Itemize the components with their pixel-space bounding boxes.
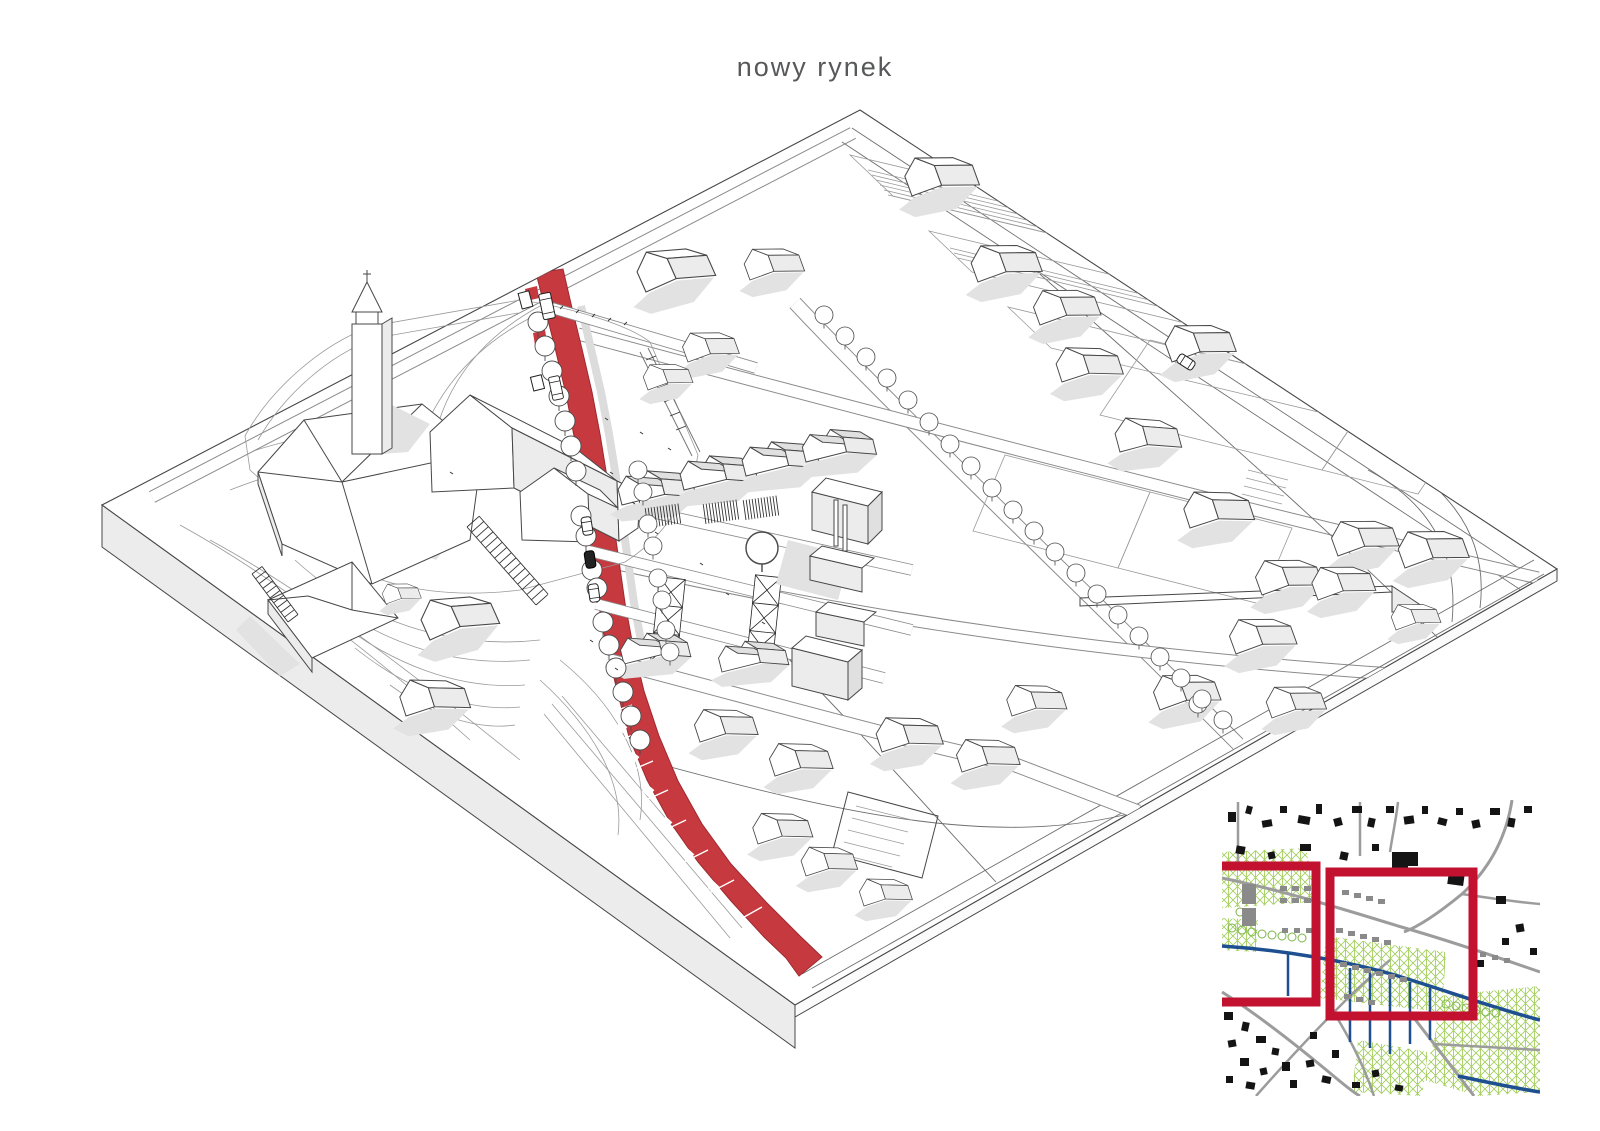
- car: [581, 516, 594, 535]
- spire-cross: [363, 270, 371, 282]
- site-drawing: [0, 0, 1600, 1131]
- church-tower-side: [382, 318, 392, 454]
- car: [588, 583, 600, 602]
- page: nowy rynek: [0, 0, 1600, 1131]
- car: [584, 550, 597, 568]
- church-spire: [352, 282, 382, 312]
- church-tower: [352, 324, 382, 454]
- location-inset-map: [1220, 800, 1540, 1096]
- inset-large-building: [1392, 852, 1418, 866]
